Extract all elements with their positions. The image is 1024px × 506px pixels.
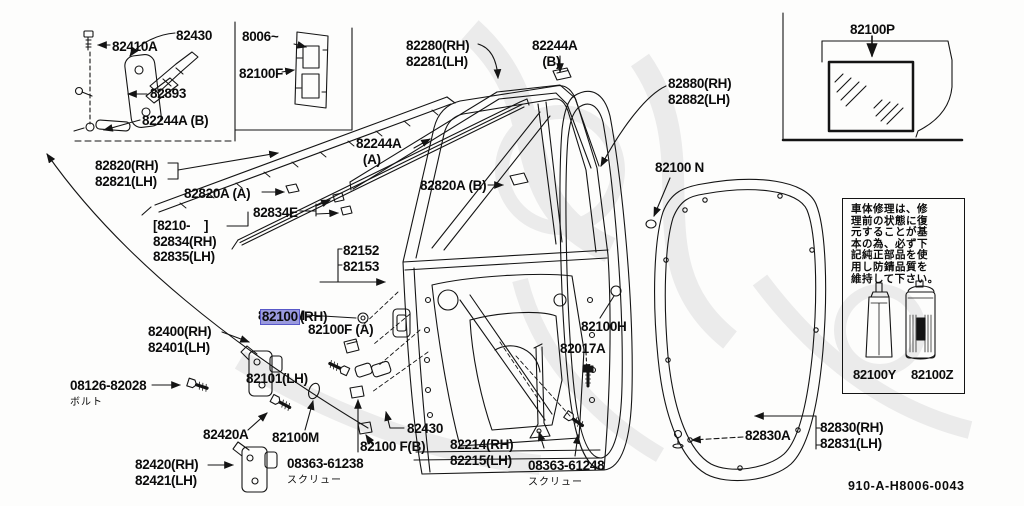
part-label-82820[interactable]: 82820(RH)82821(LH): [95, 158, 158, 189]
part-label-08126-82028[interactable]: 08126-82028ボルト: [70, 378, 146, 410]
part-label-82880[interactable]: 82880(RH)82882(LH): [668, 76, 731, 107]
part-label-82830A[interactable]: 82830A: [745, 428, 791, 444]
part-label-82830[interactable]: 82830(RH)82831(LH): [820, 420, 883, 451]
part-label-8210[interactable]: [8210- ]82834(RH)82835(LH): [153, 218, 216, 265]
part-label-82017A[interactable]: 82017A: [560, 341, 606, 357]
highlighted-part-number[interactable]: 82100: [260, 309, 300, 325]
part-label-82100P[interactable]: 82100P: [850, 22, 895, 38]
parts-diagram-page: 8243082410A8289382244A (B)8006~82100F822…: [0, 0, 1024, 506]
part-label-82244A-B-box[interactable]: 82244A (B): [142, 113, 208, 129]
part-label-08363-61248[interactable]: 08363-61248スクリュー: [528, 458, 604, 490]
part-label-82100H[interactable]: 82100H: [581, 319, 627, 335]
part-label-82244A-B[interactable]: 82244A (B): [532, 38, 578, 69]
part-label-82100-highlighted[interactable]: 82100(RH) 82101(LH): [246, 262, 327, 402]
part-label-82100N[interactable]: 82100 N: [655, 160, 704, 176]
part-label-82420[interactable]: 82420(RH)82421(LH): [135, 457, 198, 488]
part-label-82244A-A[interactable]: 82244A (A): [356, 136, 402, 167]
diagram-code: 910-A-H8006-0043: [848, 479, 965, 493]
part-label-82100F-B[interactable]: 82100 F(B): [360, 439, 425, 455]
part-label-82400[interactable]: 82400(RH)82401(LH): [148, 324, 211, 355]
part-label-82820A-B[interactable]: 82820A (B): [420, 178, 486, 194]
part-label-82420A[interactable]: 82420A: [203, 427, 249, 443]
part-label-8006[interactable]: 8006~: [242, 29, 278, 45]
part-label-82214[interactable]: 82214(RH)82215(LH): [450, 437, 513, 468]
part-label-82280[interactable]: 82280(RH)82281(LH): [406, 38, 469, 69]
repair-note-text: 車体修理は、修理前の状態に復元することが基本の為、必ず下記純正部品を使用し防錆品…: [851, 204, 939, 285]
part-label-82430-2[interactable]: 82430: [407, 421, 443, 437]
part-suffix: (RH): [300, 309, 327, 324]
part-label-82410A[interactable]: 82410A: [112, 39, 158, 55]
repair-note-box: 車体修理は、修理前の状態に復元することが基本の為、必ず下記純正部品を使用し防錆品…: [842, 198, 965, 394]
part-label-82100F-box[interactable]: 82100F: [239, 66, 283, 82]
part-label-82152[interactable]: 8215282153: [343, 243, 379, 274]
part-label-82430-box[interactable]: 82430: [176, 28, 212, 44]
part-label-82893[interactable]: 82893: [150, 86, 186, 102]
part-label-82100Z[interactable]: 82100Z: [911, 367, 953, 382]
part-label-82100Y[interactable]: 82100Y: [853, 367, 896, 382]
part-label-08363-61238[interactable]: 08363-61238スクリュー: [287, 456, 363, 488]
part-label-82100M-2[interactable]: 82100M: [272, 430, 319, 446]
part-label-82820A-A[interactable]: 82820A (A): [184, 186, 250, 202]
part-label-82101: 82101(LH): [246, 371, 327, 387]
part-label-82834E[interactable]: 82834E: [253, 205, 298, 221]
